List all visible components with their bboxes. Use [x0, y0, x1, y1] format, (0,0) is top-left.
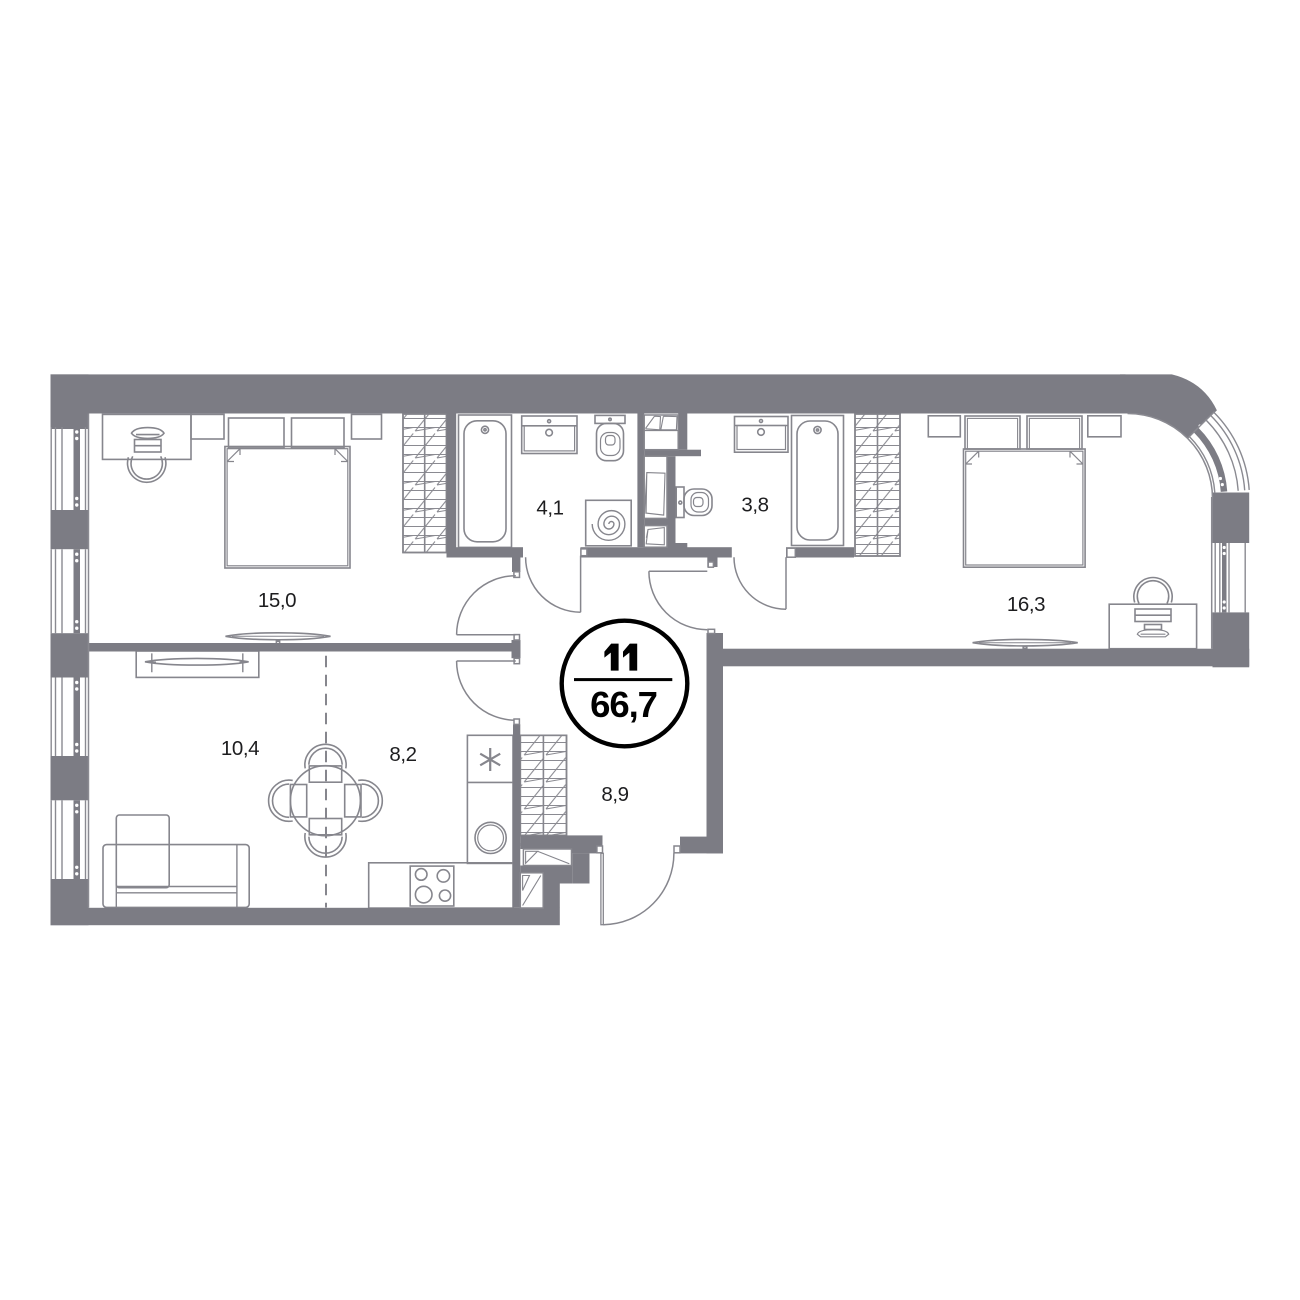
svg-text:16,3: 16,3 [1007, 593, 1045, 616]
svg-text:10,4: 10,4 [221, 737, 259, 760]
svg-text:8,9: 8,9 [601, 783, 628, 806]
svg-text:8,2: 8,2 [389, 743, 416, 766]
svg-text:15,0: 15,0 [258, 589, 296, 612]
svg-text:66,7: 66,7 [590, 684, 657, 725]
svg-text:4,1: 4,1 [536, 497, 563, 520]
svg-text:3,8: 3,8 [741, 494, 768, 517]
